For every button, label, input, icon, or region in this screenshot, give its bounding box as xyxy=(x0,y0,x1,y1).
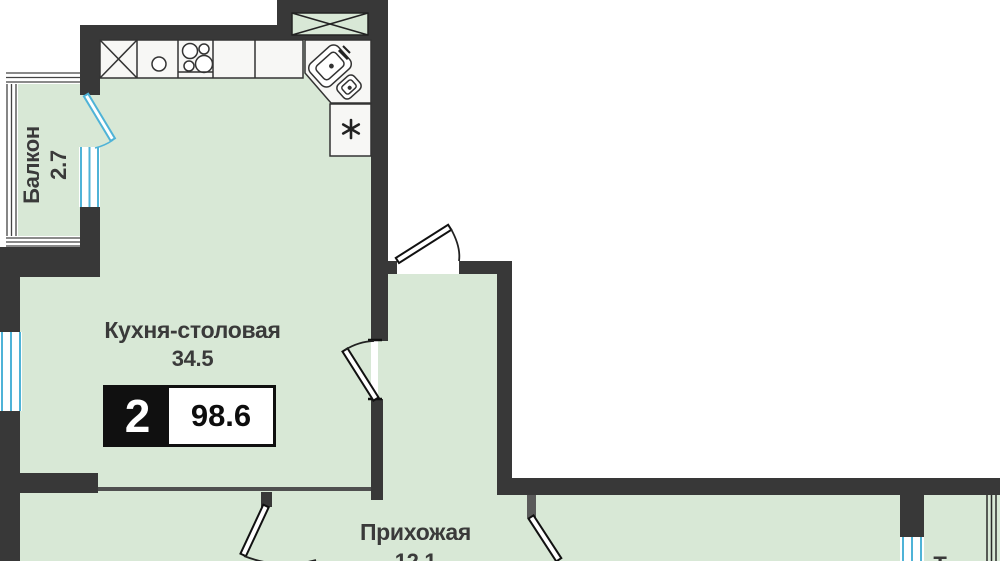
room-boundary-line xyxy=(98,487,371,491)
window-balcony-wall xyxy=(79,147,100,207)
wall-hallway-right xyxy=(497,261,512,479)
floor-plan-drawing xyxy=(0,0,1000,561)
wall-kitchen-right-upper xyxy=(371,0,388,341)
room-area-hallway: 12.1 xyxy=(313,549,518,561)
wall-balcony-pier-top xyxy=(80,25,100,95)
room-area-kitchen: 34.5 xyxy=(90,346,295,372)
balcony-name: Балкон xyxy=(18,85,45,245)
wall-kitchen-top xyxy=(80,25,295,40)
badge-room-count: 2 xyxy=(106,388,169,444)
hallway-upper-floor xyxy=(378,274,497,495)
vent-shaft-icon xyxy=(292,13,368,35)
balcony-area: 2.7 xyxy=(45,85,72,245)
room-label-hallway: Прихожая xyxy=(313,519,518,546)
wall-kitchen-right-lower xyxy=(371,399,383,500)
wall-entry-left-jamb xyxy=(386,261,397,274)
sink-single-icon xyxy=(152,57,166,71)
apartment-badge: 2 98.6 xyxy=(103,385,276,447)
room-label-balcony: Балкон 2.7 xyxy=(18,85,74,245)
entrance-door-arc xyxy=(451,229,459,261)
partial-room-floor xyxy=(924,490,1000,561)
window-bottom xyxy=(901,537,924,561)
entrance-door xyxy=(396,225,460,263)
wall-left-upper xyxy=(0,247,20,332)
wall-partial-room-left xyxy=(900,495,924,537)
room-label-partial: Т xyxy=(922,552,958,561)
window-left-wall xyxy=(0,332,22,411)
wall-bottom-left-stub xyxy=(0,473,98,493)
room-label-kitchen: Кухня-столовая xyxy=(90,317,295,344)
door-stub-center xyxy=(527,495,536,518)
badge-total-area: 98.6 xyxy=(169,388,273,444)
wall-bottom-long xyxy=(497,478,1000,495)
floor-plan: Балкон 2.7 Кухня-столовая 34.5 2 98.6 Пр… xyxy=(0,0,1000,561)
